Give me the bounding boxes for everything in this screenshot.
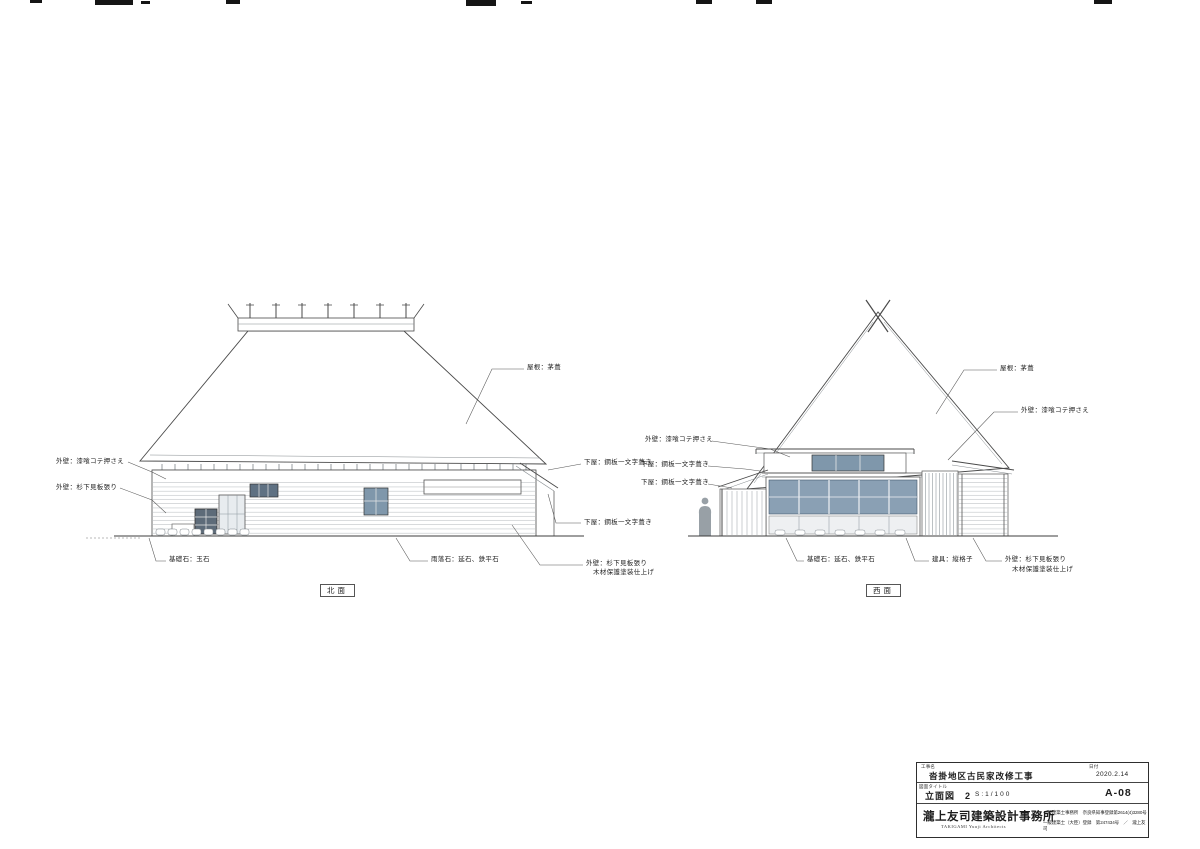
label-west-cedar-paint-2: 木材保護塗装仕上げ: [1012, 566, 1073, 574]
label-north-pent-roof-lower: 下屋：鋼板一文字葺き: [584, 519, 652, 527]
firm-name-english: TAKIGAMI Yuuji Architects: [941, 824, 1006, 829]
person-figure: [699, 498, 711, 536]
label-west-roof-thatch: 屋根：茅葺: [1000, 365, 1034, 373]
west-elevation-drawing: [688, 300, 1058, 536]
label-west-cedar-paint-1: 外壁：杉下見板張り: [1005, 556, 1066, 564]
label-north-roof-thatch: 屋根：茅葺: [527, 364, 561, 372]
project-label: 工事名: [921, 764, 935, 769]
north-elevation-drawing: [86, 303, 584, 538]
title-block-row-firm: 瀧上友司建築設計事務所 TAKIGAMI Yuuji Architects 一級…: [917, 804, 1148, 835]
label-north-rain-stone: 雨落石：延石、鉄平石: [431, 556, 499, 564]
title-block-row-project: 工事名 沓掛地区古民家改修工事 日付 2020.2.14: [917, 763, 1148, 783]
label-north-foundation: 基礎石：玉石: [169, 556, 210, 564]
label-north-wall-cedar: 外壁：杉下見板張り: [56, 484, 117, 492]
elevation-linework: [0, 0, 1200, 849]
drawing-number: A-08: [1105, 787, 1132, 799]
label-west-fitting: 建具：縦格子: [932, 556, 973, 564]
view-tag-north: 北面: [320, 584, 355, 597]
project-name: 沓掛地区古民家改修工事: [929, 770, 1034, 782]
scan-artifacts: [30, 0, 1112, 6]
label-north-cedar-paint-2: 木材保護塗装仕上げ: [593, 569, 654, 577]
firm-name: 瀧上友司建築設計事務所: [923, 808, 1055, 824]
registration-line1: 一級建築士事務所 奈良県知事登録第2614(4)3280号: [1043, 810, 1147, 816]
registration-line2: 一級建築士（大臣）登録 第247434号 ／ 瀧上友司: [1043, 820, 1148, 832]
label-west-wall-plaster-left: 外壁：漆喰コテ押さえ: [645, 436, 713, 444]
label-west-wall-plaster-right: 外壁：漆喰コテ押さえ: [1021, 407, 1089, 415]
label-west-pent-roof-1: 下屋：鋼板一文字葺き: [641, 461, 709, 469]
date-value: 2020.2.14: [1096, 771, 1129, 778]
drawing-title: 立面図 2: [925, 789, 971, 802]
title-block-row-drawing: 図面タイトル 立面図 2 S:1/100 A-08: [917, 783, 1148, 804]
label-west-foundation: 基礎石：延石、鉄平石: [807, 556, 875, 564]
label-north-wall-plaster: 外壁：漆喰コテ押さえ: [56, 458, 124, 466]
date-label: 日付: [1089, 764, 1098, 769]
title-block: 工事名 沓掛地区古民家改修工事 日付 2020.2.14 図面タイトル 立面図 …: [916, 762, 1149, 838]
view-tag-west: 西面: [866, 584, 901, 597]
drawing-scale: S:1/100: [975, 791, 1011, 798]
label-north-cedar-paint-1: 外壁：杉下見板張り: [586, 560, 647, 568]
drawing-sheet: 外壁：漆喰コテ押さえ 外壁：杉下見板張り 屋根：茅葺 下屋：鋼板一文字葺き 下屋…: [0, 0, 1200, 849]
label-west-pent-roof-2: 下屋：鋼板一文字葺き: [641, 479, 709, 487]
